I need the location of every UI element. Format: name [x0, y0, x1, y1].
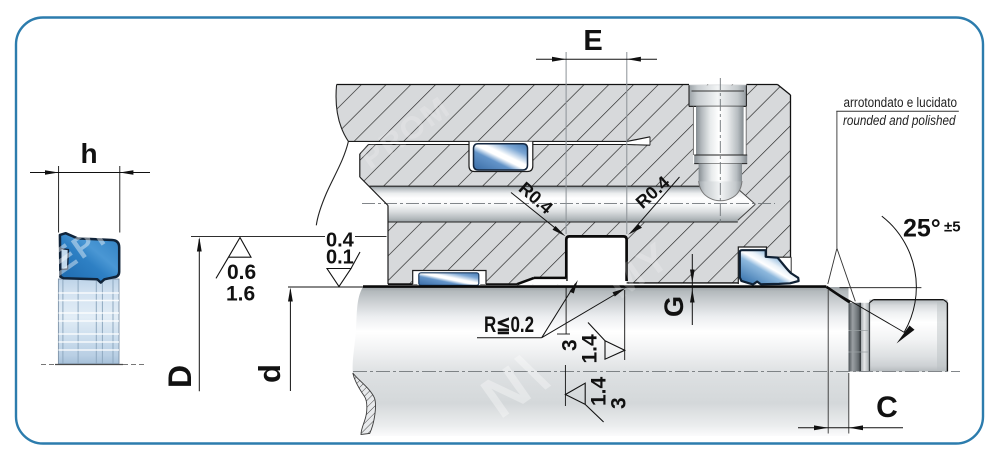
svg-text:±5: ±5: [944, 219, 961, 236]
svg-text:3: 3: [608, 397, 631, 409]
svg-text:0.1: 0.1: [326, 247, 354, 269]
svg-text:E: E: [583, 25, 602, 57]
svg-text:0.6: 0.6: [227, 261, 256, 284]
svg-text:R≦0.2: R≦0.2: [484, 312, 534, 337]
svg-text:d: d: [252, 364, 287, 383]
svg-text:G: G: [659, 296, 689, 317]
svg-text:h: h: [80, 138, 97, 169]
svg-text:rounded and polished: rounded and polished: [843, 113, 956, 128]
svg-text:D: D: [162, 365, 198, 388]
svg-text:1.6: 1.6: [226, 283, 255, 306]
svg-text:C: C: [876, 391, 898, 424]
svg-text:25°: 25°: [903, 215, 941, 243]
svg-text:1.4: 1.4: [579, 334, 602, 364]
svg-text:arrotondato e lucidato: arrotondato e lucidato: [844, 95, 958, 110]
